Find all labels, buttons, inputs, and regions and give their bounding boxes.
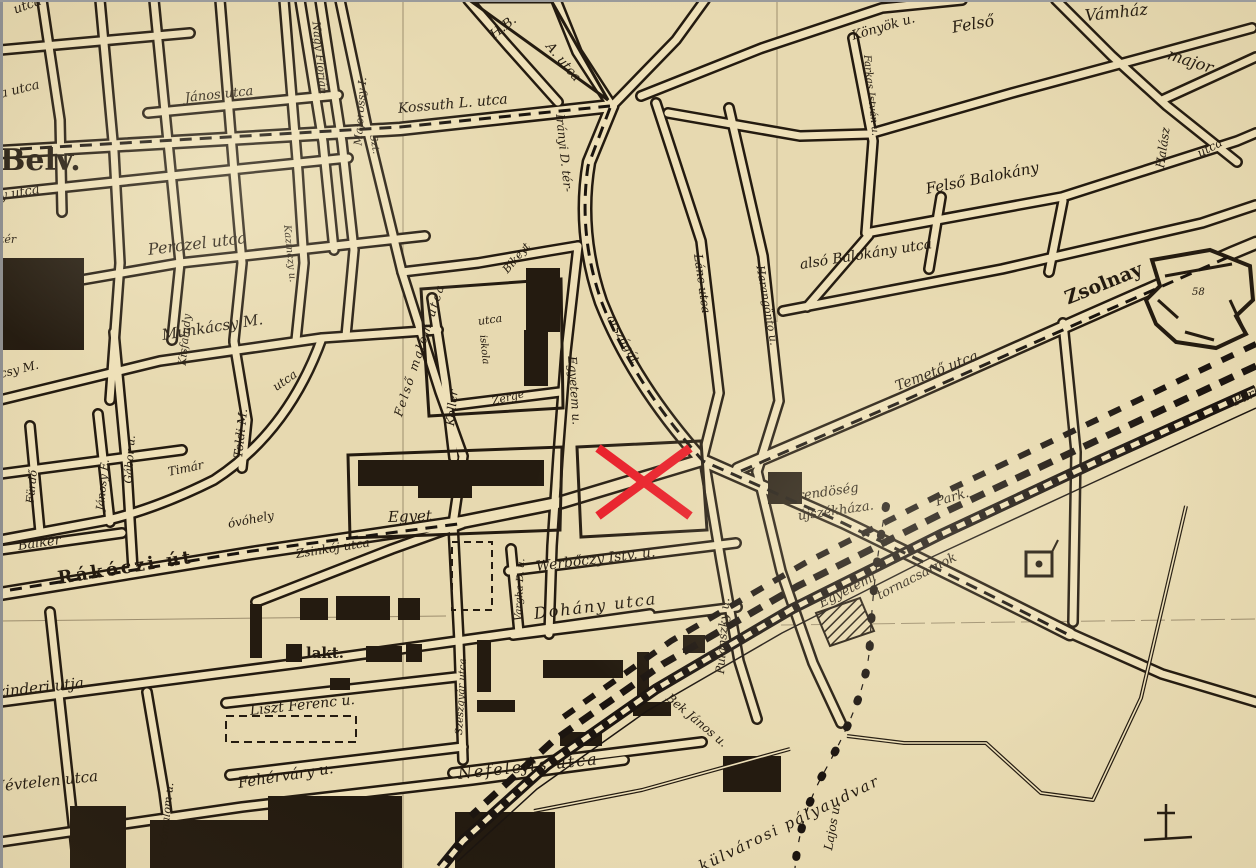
police-hq-building xyxy=(768,472,802,504)
scan-edge-top xyxy=(0,0,1256,2)
cross-symbol xyxy=(1144,804,1192,840)
map-canvas: utcaa utcaBelv.y utcatérJános utcaNagy F… xyxy=(0,0,1256,868)
scan-edge-left xyxy=(0,0,3,868)
gymnasium-building xyxy=(816,598,874,646)
map-drawing xyxy=(0,0,1256,868)
small-building-symbol xyxy=(1026,540,1058,576)
factory-symbol xyxy=(1146,250,1253,348)
dotted-boundary xyxy=(795,506,886,868)
